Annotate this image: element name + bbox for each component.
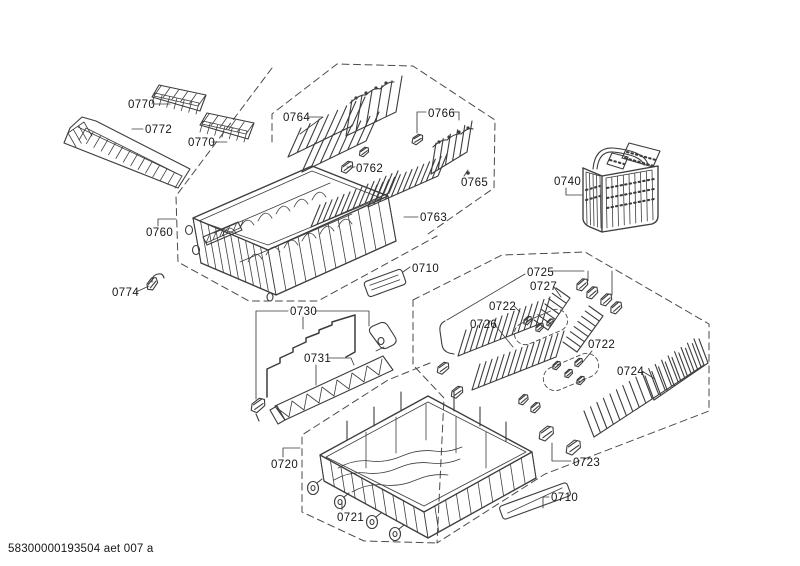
part-label-0740[interactable]: 0740 bbox=[554, 176, 581, 188]
part-label-0763[interactable]: 0763 bbox=[420, 212, 447, 224]
part-label-0772[interactable]: 0772 bbox=[145, 124, 172, 136]
part-label-0764[interactable]: 0764 bbox=[283, 112, 310, 124]
part-label-0721[interactable]: 0721 bbox=[337, 512, 364, 524]
part-label-0731[interactable]: 0731 bbox=[304, 353, 331, 365]
part-label-0765[interactable]: 0765 bbox=[461, 177, 488, 189]
exploded-parts-diagram: 0770 0772 0770 0760 0774 0764 0762 0766 … bbox=[0, 0, 800, 566]
part-label-0720[interactable]: 0720 bbox=[271, 459, 298, 471]
part-label-0774[interactable]: 0774 bbox=[112, 287, 139, 299]
part-label-0723[interactable]: 0723 bbox=[573, 457, 600, 469]
part-label-0770-b[interactable]: 0770 bbox=[188, 137, 215, 149]
part-label-0725[interactable]: 0725 bbox=[527, 267, 554, 279]
diagram-code: 58300000193504 aet 007 a bbox=[8, 543, 154, 555]
part-label-0726[interactable]: 0726 bbox=[470, 319, 497, 331]
part-label-0730[interactable]: 0730 bbox=[290, 306, 317, 318]
part-label-0770-a[interactable]: 0770 bbox=[128, 99, 155, 111]
part-label-0710-a[interactable]: 0710 bbox=[412, 263, 439, 275]
diagram-canvas: 0770 0772 0770 0760 0774 0764 0762 0766 … bbox=[0, 0, 800, 566]
part-label-0722-b[interactable]: 0722 bbox=[588, 339, 615, 351]
part-label-0727[interactable]: 0727 bbox=[530, 281, 557, 293]
part-label-0722-a[interactable]: 0722 bbox=[489, 301, 516, 313]
part-label-0762[interactable]: 0762 bbox=[356, 163, 383, 175]
part-label-0710-b[interactable]: 0710 bbox=[551, 492, 578, 504]
part-label-0760[interactable]: 0760 bbox=[146, 227, 173, 239]
part-label-0724[interactable]: 0724 bbox=[617, 366, 644, 378]
part-label-0766[interactable]: 0766 bbox=[428, 108, 455, 120]
